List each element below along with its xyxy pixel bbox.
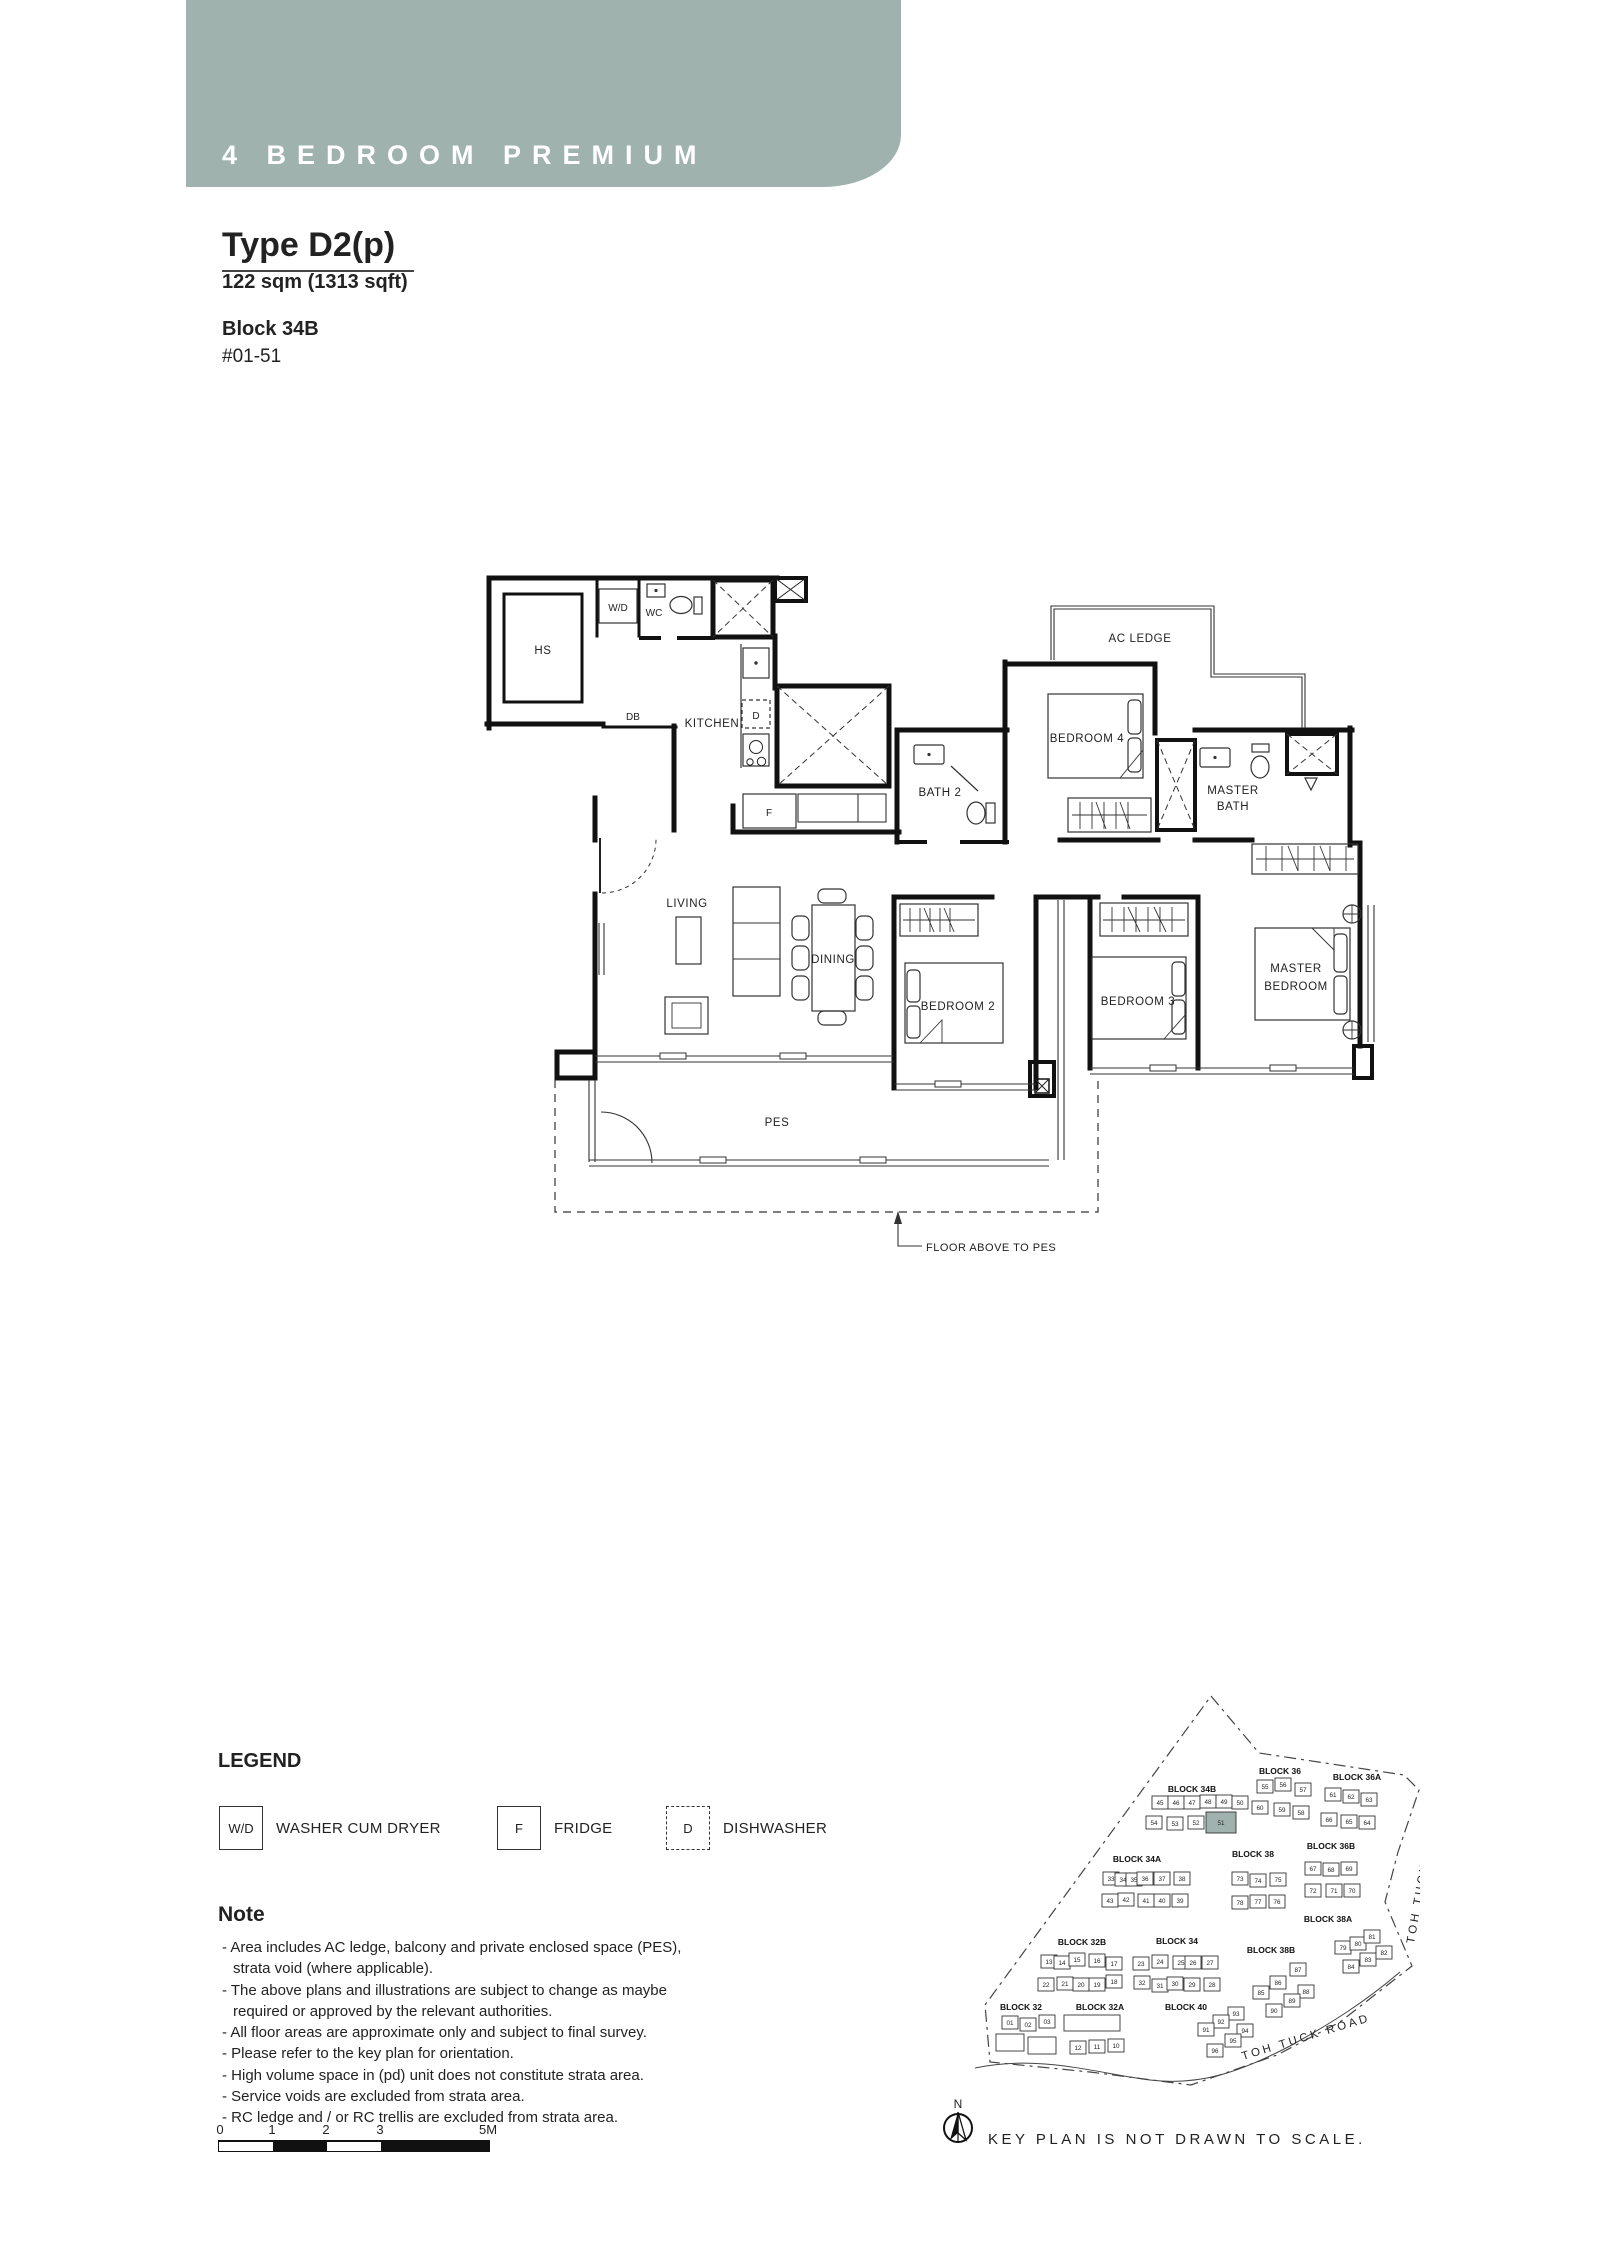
svg-text:96: 96 (1211, 2048, 1219, 2055)
svg-text:65: 65 (1345, 1819, 1353, 1826)
room-label-pes: PES (765, 1117, 790, 1129)
scale-bar: 0 1 2 3 5M (218, 2122, 518, 2156)
svg-text:49: 49 (1220, 1799, 1228, 1806)
svg-text:89: 89 (1288, 1998, 1296, 2005)
key-plan-block-label: BLOCK 34A (1113, 1854, 1161, 1864)
note-line: - Service voids are excluded from strata… (222, 2086, 708, 2107)
key-plan-block-label: BLOCK 34 (1156, 1936, 1198, 1946)
svg-text:54: 54 (1150, 1820, 1158, 1827)
strata-void-x-icon (777, 686, 889, 786)
svg-text:16: 16 (1093, 1958, 1101, 1965)
svg-text:58: 58 (1297, 1810, 1305, 1817)
svg-text:52: 52 (1192, 1820, 1200, 1827)
unit-number: #01-51 (222, 346, 281, 368)
key-plan-block-label: BLOCK 38 (1232, 1849, 1274, 1859)
pes-gate-swing-icon (601, 1112, 652, 1163)
room-label-dishwasher: D (752, 711, 759, 722)
entry-door-swing-icon (602, 839, 656, 893)
legend-title: LEGEND (218, 1750, 301, 1773)
key-plan-caption: KEY PLAN IS NOT DRAWN TO SCALE. (988, 2131, 1366, 2148)
road-label-toh-tuck-2: TOH TUCK ROAD (1405, 1811, 1420, 1945)
svg-text:60: 60 (1256, 1805, 1264, 1812)
svg-text:70: 70 (1348, 1888, 1356, 1895)
svg-text:37: 37 (1158, 1876, 1166, 1883)
svg-text:33: 33 (1107, 1876, 1115, 1883)
brochure-page: 4 BEDROOM PREMIUM Type D2(p) 122 sqm (13… (0, 0, 1600, 2263)
room-label-hs: HS (534, 645, 551, 657)
legend-item-fridge: F FRIDGE (497, 1806, 612, 1850)
key-plan-block-label: BLOCK 38A (1304, 1914, 1352, 1924)
svg-text:19: 19 (1093, 1982, 1101, 1989)
floor-plan: HS W/D WC DB KITCHEN D F BATH 2 AC LEDGE… (480, 558, 1400, 1258)
ac-ledge-inner (1054, 609, 1302, 728)
room-label-ac-ledge: AC LEDGE (1109, 633, 1172, 645)
svg-text:81: 81 (1368, 1934, 1376, 1941)
svg-text:38: 38 (1178, 1876, 1186, 1883)
label-floor-above-pes: FLOOR ABOVE TO PES (926, 1242, 1056, 1254)
svg-text:67: 67 (1309, 1866, 1317, 1873)
legend-item-dishwasher: D DISHWASHER (666, 1806, 827, 1850)
svg-text:79: 79 (1339, 1945, 1347, 1952)
unit-type-title: Type D2(p) (222, 226, 414, 272)
leader-line (898, 1222, 922, 1246)
se-corner-pier (1354, 1046, 1372, 1078)
note-line: - The above plans and illustrations are … (222, 1980, 708, 2023)
unit-area: 122 sqm (1313 sqft) (222, 271, 408, 294)
key-plan-blocks: 45464748495054535251BLOCK 34B55565760595… (996, 1766, 1392, 2057)
north-arrow-icon: N (944, 2097, 972, 2142)
window-mullions (660, 1053, 1296, 1163)
svg-text:20: 20 (1077, 1982, 1085, 1989)
wc-toilet (670, 597, 692, 614)
svg-text:45: 45 (1156, 1800, 1164, 1807)
scale-bar-strip (218, 2140, 490, 2152)
svg-text:02: 02 (1024, 2022, 1032, 2029)
svg-text:46: 46 (1172, 1800, 1180, 1807)
svg-text:50: 50 (1236, 1800, 1244, 1807)
dishwasher-symbol: D (666, 1806, 710, 1850)
kitchen-fixtures (599, 589, 886, 828)
svg-text:77: 77 (1254, 1899, 1262, 1906)
svg-text:53: 53 (1171, 1821, 1179, 1828)
svg-text:78: 78 (1236, 1900, 1244, 1907)
room-label-wd: W/D (608, 603, 627, 614)
svg-text:10: 10 (1112, 2043, 1120, 2050)
svg-text:92: 92 (1217, 2019, 1225, 2026)
svg-text:24: 24 (1156, 1959, 1164, 1966)
key-plan-block-label: BLOCK 36B (1307, 1841, 1355, 1851)
header-band: 4 BEDROOM PREMIUM (186, 0, 901, 187)
pes-left-pier (557, 1052, 595, 1078)
svg-text:90: 90 (1270, 2008, 1278, 2015)
svg-text:21: 21 (1061, 1981, 1069, 1988)
note-line: - Please refer to the key plan for orien… (222, 2043, 708, 2064)
svg-text:43: 43 (1106, 1898, 1114, 1905)
svg-text:57: 57 (1299, 1787, 1307, 1794)
side-table (676, 917, 701, 964)
svg-text:14: 14 (1058, 1960, 1066, 1967)
ac-ledge-outline (1051, 606, 1305, 728)
svg-text:15: 15 (1073, 1957, 1081, 1964)
note-line: - All floor areas are approximate only a… (222, 2022, 708, 2043)
room-label-masterbed-1: MASTER (1270, 963, 1322, 975)
room-label-living: LIVING (666, 898, 707, 910)
room-label-bedroom2: BEDROOM 2 (921, 1001, 995, 1013)
room-label-bedroom3: BEDROOM 3 (1101, 996, 1175, 1008)
shower-door-icon (1305, 778, 1317, 790)
masterbath-toilet (1252, 744, 1269, 752)
north-label: N (954, 2097, 963, 2111)
room-label-masterbed-2: BEDROOM (1264, 981, 1328, 993)
note-line: - High volume space in (pd) unit does no… (222, 2065, 708, 2086)
scale-tick: 1 (268, 2122, 275, 2137)
svg-text:40: 40 (1158, 1898, 1166, 1905)
svg-text:23: 23 (1137, 1961, 1145, 1968)
svg-text:31: 31 (1156, 1983, 1164, 1990)
svg-text:47: 47 (1188, 1800, 1196, 1807)
key-plan-block-label: BLOCK 36 (1259, 1766, 1301, 1776)
key-plan-block-label: BLOCK 32B (1058, 1937, 1106, 1947)
key-plan-block-label: BLOCK 40 (1165, 2002, 1207, 2012)
page-title: 4 BEDROOM PREMIUM (222, 140, 708, 171)
key-plan-block-label: BLOCK 38B (1247, 1945, 1295, 1955)
svg-text:03: 03 (1043, 2019, 1051, 2026)
shaft-2-x-icon (1157, 740, 1195, 830)
svg-text:64: 64 (1363, 1820, 1371, 1827)
svg-text:95: 95 (1229, 2038, 1237, 2045)
svg-text:88: 88 (1302, 1989, 1310, 1996)
road-label-toh-tuck-1: TOH TUCK ROAD (1240, 2012, 1371, 2063)
svg-text:91: 91 (1202, 2027, 1210, 2034)
svg-text:83: 83 (1364, 1957, 1372, 1964)
note-line: - Area includes AC ledge, balcony and pr… (222, 1937, 708, 1980)
svg-text:76: 76 (1273, 1899, 1281, 1906)
svg-text:74: 74 (1254, 1878, 1262, 1885)
pes-dashed-boundary (555, 1080, 1098, 1212)
wardrobe-3 (1100, 903, 1188, 936)
svg-text:30: 30 (1171, 1981, 1179, 1988)
scale-tick: 0 (216, 2122, 223, 2137)
walls-medium (641, 638, 1007, 842)
room-label-bedroom4: BEDROOM 4 (1050, 733, 1124, 745)
sofa (733, 887, 780, 996)
svg-text:94: 94 (1241, 2028, 1249, 2035)
washer-dryer-symbol: W/D (219, 1806, 263, 1850)
scale-tick: 2 (322, 2122, 329, 2137)
room-label-masterbath-2: BATH (1217, 801, 1249, 813)
svg-text:13: 13 (1045, 1959, 1053, 1966)
room-label-masterbath-1: MASTER (1207, 785, 1259, 797)
svg-text:39: 39 (1176, 1898, 1184, 1905)
svg-text:01: 01 (1006, 2020, 1014, 2027)
key-plan: 45464748495054535251BLOCK 34B55565760595… (940, 1628, 1420, 2158)
svg-text:69: 69 (1345, 1866, 1353, 1873)
windows (589, 900, 1374, 1166)
svg-text:80: 80 (1354, 1941, 1362, 1948)
svg-text:55: 55 (1261, 1784, 1269, 1791)
svg-text:12: 12 (1074, 2045, 1082, 2052)
svg-text:25: 25 (1177, 1960, 1185, 1967)
svg-text:61: 61 (1329, 1792, 1337, 1799)
key-plan-block-label: BLOCK 32 (1000, 2002, 1042, 2012)
svg-text:11: 11 (1094, 2044, 1101, 2051)
svg-text:41: 41 (1142, 1898, 1150, 1905)
svg-text:68: 68 (1327, 1867, 1335, 1874)
svg-text:72: 72 (1309, 1888, 1317, 1895)
fridge-symbol: F (497, 1806, 541, 1850)
scale-tick: 5M (479, 2122, 497, 2137)
svg-text:82: 82 (1380, 1950, 1388, 1957)
svg-text:75: 75 (1274, 1877, 1282, 1884)
scale-tick: 3 (376, 2122, 383, 2137)
leader-arrow-icon (894, 1211, 902, 1224)
svg-text:86: 86 (1274, 1980, 1282, 1987)
room-label-dining: DINING (811, 954, 855, 966)
svg-text:66: 66 (1325, 1817, 1333, 1824)
room-label-kitchen: KITCHEN (685, 718, 740, 730)
svg-text:73: 73 (1236, 1876, 1244, 1883)
svg-text:17: 17 (1110, 1961, 1118, 1968)
svg-text:87: 87 (1294, 1967, 1302, 1974)
room-label-wc: WC (646, 608, 663, 619)
legend-item-washer: W/D WASHER CUM DRYER (219, 1806, 441, 1850)
room-label-bath2: BATH 2 (918, 787, 961, 799)
note-title: Note (218, 1903, 265, 1927)
duct-x-icon (775, 578, 806, 601)
shaft-1-x-icon (713, 580, 773, 637)
svg-text:93: 93 (1232, 2011, 1240, 2018)
key-plan-block-label: BLOCK 34B (1168, 1784, 1216, 1794)
room-labels: HS W/D WC DB KITCHEN D F BATH 2 AC LEDGE… (534, 603, 1327, 1254)
svg-text:27: 27 (1206, 1960, 1214, 1967)
bath2-toilet (967, 802, 985, 824)
key-plan-block-label: BLOCK 32A (1076, 2002, 1124, 2012)
svg-text:71: 71 (1330, 1888, 1338, 1895)
unit-block: Block 34B (222, 318, 319, 341)
svg-text:28: 28 (1208, 1982, 1216, 1989)
svg-text:36: 36 (1141, 1876, 1149, 1883)
key-plan-block-label: BLOCK 36A (1333, 1772, 1381, 1782)
note-list: - Area includes AC ledge, balcony and pr… (222, 1937, 708, 2129)
room-label-db: DB (626, 712, 640, 723)
svg-text:85: 85 (1257, 1990, 1265, 1997)
svg-text:56: 56 (1279, 1782, 1287, 1789)
svg-text:48: 48 (1204, 1799, 1212, 1806)
svg-text:42: 42 (1122, 1897, 1130, 1904)
svg-text:51: 51 (1217, 1820, 1225, 1827)
svg-text:26: 26 (1189, 1960, 1197, 1967)
svg-text:22: 22 (1042, 1982, 1050, 1989)
svg-text:18: 18 (1110, 1979, 1118, 1986)
svg-text:63: 63 (1365, 1797, 1373, 1804)
svg-text:59: 59 (1278, 1807, 1286, 1814)
room-label-fridge: F (766, 808, 772, 819)
svg-text:84: 84 (1347, 1964, 1355, 1971)
svg-text:32: 32 (1138, 1980, 1146, 1987)
svg-text:29: 29 (1188, 1982, 1196, 1989)
svg-text:62: 62 (1347, 1794, 1355, 1801)
shower-x-icon (1287, 734, 1337, 774)
